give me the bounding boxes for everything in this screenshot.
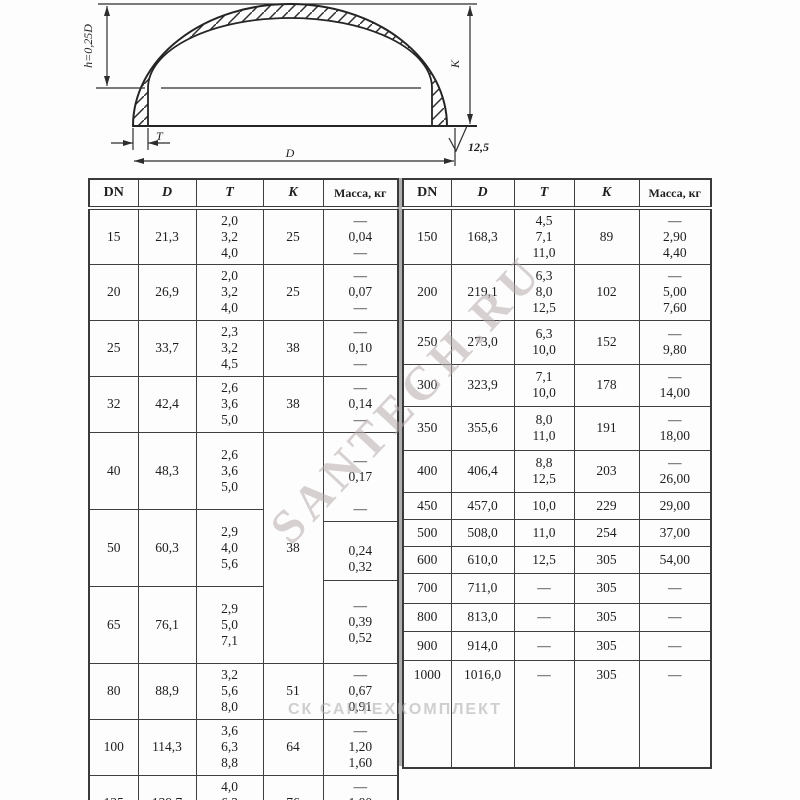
col-header-d: D [138, 179, 196, 208]
cell-d: 355,6 [451, 406, 514, 450]
col-header-dn: DN [89, 179, 138, 208]
cell-mass: — 5,00 7,60 [639, 264, 711, 320]
cell-mass: — 14,00 [639, 364, 711, 406]
cell-t: 4,5 7,1 11,0 [514, 208, 574, 264]
table-row: 32 42,4 2,6 3,6 5,0 38 — 0,14 — [89, 376, 398, 432]
col-header-mass: Масса, кг [323, 179, 398, 208]
cell-mass: — 0,39 0,52 [324, 597, 398, 647]
cell-dn: 700 [403, 573, 451, 603]
cell-mass: — [639, 573, 711, 603]
cell-mass: — 9,80 [639, 320, 711, 364]
cell-k: 25 [263, 264, 323, 320]
cell-k: 64 [263, 719, 323, 775]
cell-k: 178 [574, 364, 639, 406]
cell-d: 406,4 [451, 450, 514, 492]
cell-d: 76,1 [138, 586, 196, 663]
cell-d: 508,0 [451, 519, 514, 546]
cell-mass: — 0,17 — [324, 449, 398, 522]
cell-t: — [514, 660, 574, 768]
cell-t: 7,1 10,0 [514, 364, 574, 406]
cell-mass: — 0,04 — [323, 208, 398, 264]
cell-k: 25 [263, 208, 323, 264]
cell-dn: 100 [89, 719, 138, 775]
cell-t: 6,3 8,0 12,5 [514, 264, 574, 320]
cell-dn: 500 [403, 519, 451, 546]
table-row: 100 114,3 3,6 6,3 8,8 64 — 1,20 1,60 [89, 719, 398, 775]
table-row: 450 457,0 10,0 229 29,00 [403, 492, 711, 519]
cell-mass: — 0,07 — [323, 264, 398, 320]
table-row: 20 26,9 2,0 3,2 4,0 25 — 0,07 — [89, 264, 398, 320]
cell-k-merged: 38 [263, 432, 323, 663]
cell-mass: — 0,14 — [323, 376, 398, 432]
cell-dn: 50 [89, 509, 138, 586]
cell-t: 2,6 3,6 5,0 [196, 432, 263, 509]
cell-t: 8,0 11,0 [514, 406, 574, 450]
cell-d: 1016,0 [451, 660, 514, 768]
cell-k: 305 [574, 660, 639, 768]
cell-d: 914,0 [451, 631, 514, 660]
cell-mass: — [639, 631, 711, 660]
table-row: 400 406,4 8,8 12,5 203 — 26,00 [403, 450, 711, 492]
cell-d: 21,3 [138, 208, 196, 264]
cell-dn: 400 [403, 450, 451, 492]
cell-dn: 65 [89, 586, 138, 663]
cell-k: 76 [263, 775, 323, 800]
cell-t: 2,3 3,2 4,5 [196, 320, 263, 376]
cell-d: 711,0 [451, 573, 514, 603]
cell-k: 305 [574, 631, 639, 660]
cell-dn: 800 [403, 603, 451, 631]
cell-mass: — 0,67 0,91 [323, 663, 398, 719]
col-header-t: T [514, 179, 574, 208]
cell-t: 3,2 5,6 8,0 [196, 663, 263, 719]
cell-mass: — 18,00 [639, 406, 711, 450]
dimensions-table-dn15-125: DN D T K Масса, кг 15 21,3 2,0 3,2 4,0 2… [88, 178, 399, 800]
table-row: 40 48,3 2,6 3,6 5,0 38 — 0,17 — 0,24 0,3… [89, 432, 398, 509]
cell-dn: 600 [403, 546, 451, 573]
col-header-k: K [574, 179, 639, 208]
table-row: 600 610,0 12,5 305 54,00 [403, 546, 711, 573]
cell-t: 12,5 [514, 546, 574, 573]
cell-mass: — [639, 603, 711, 631]
col-header-t: T [196, 179, 263, 208]
cell-d: 33,7 [138, 320, 196, 376]
cell-t: 2,0 3,2 4,0 [196, 264, 263, 320]
h-dimension-label: h=0,25D [81, 24, 95, 68]
d-dimension-label: D [285, 146, 295, 160]
cell-dn: 300 [403, 364, 451, 406]
cell-mass: — 1,80 2,80 [323, 775, 398, 800]
table-row: 800 813,0 — 305 — [403, 603, 711, 631]
col-header-dn: DN [403, 179, 451, 208]
t-dimension-label: T [156, 129, 164, 143]
cell-k: 305 [574, 546, 639, 573]
cell-t: 2,6 3,6 5,0 [196, 376, 263, 432]
cell-d: 26,9 [138, 264, 196, 320]
table-row: 200 219,1 6,3 8,0 12,5 102 — 5,00 7,60 [403, 264, 711, 320]
cell-mass: 54,00 [639, 546, 711, 573]
cell-k: 51 [263, 663, 323, 719]
cell-mass: 37,00 [639, 519, 711, 546]
cell-t: 6,3 10,0 [514, 320, 574, 364]
cell-k: 152 [574, 320, 639, 364]
header-row: DN D T K Масса, кг [403, 179, 711, 208]
table-row: 250 273,0 6,3 10,0 152 — 9,80 [403, 320, 711, 364]
cell-k: 38 [263, 320, 323, 376]
cell-k: 203 [574, 450, 639, 492]
cell-d: 88,9 [138, 663, 196, 719]
table-row: 900 914,0 — 305 — [403, 631, 711, 660]
cell-dn: 350 [403, 406, 451, 450]
cell-mass: 29,00 [639, 492, 711, 519]
table-row: 15 21,3 2,0 3,2 4,0 25 — 0,04 — [89, 208, 398, 264]
cell-d: 139,7 [138, 775, 196, 800]
table-row: 1000 1016,0 — 305 — [403, 660, 711, 768]
header-row: DN D T K Масса, кг [89, 179, 398, 208]
cell-t: 11,0 [514, 519, 574, 546]
cell-d: 813,0 [451, 603, 514, 631]
cell-k: 102 [574, 264, 639, 320]
cell-mass-split: — 0,17 — 0,24 0,32 — 0,39 0,52 [323, 432, 398, 663]
col-header-d: D [451, 179, 514, 208]
cell-k: 229 [574, 492, 639, 519]
table-row: 150 168,3 4,5 7,1 11,0 89 — 2,90 4,40 [403, 208, 711, 264]
cell-k: 38 [263, 376, 323, 432]
cell-d: 42,4 [138, 376, 196, 432]
cell-mass: — 2,90 4,40 [639, 208, 711, 264]
cell-dn: 20 [89, 264, 138, 320]
dimensions-table-dn150-1000: DN D T K Масса, кг 150 168,3 4,5 7,1 11,… [402, 178, 712, 769]
table-row: 500 508,0 11,0 254 37,00 [403, 519, 711, 546]
cell-k: 305 [574, 573, 639, 603]
cell-mass: — 0,10 — [323, 320, 398, 376]
cell-d: 457,0 [451, 492, 514, 519]
cell-d: 610,0 [451, 546, 514, 573]
cell-mass: — 1,20 1,60 [323, 719, 398, 775]
cell-dn: 900 [403, 631, 451, 660]
cell-k: 89 [574, 208, 639, 264]
cell-k: 191 [574, 406, 639, 450]
table-row: 700 711,0 — 305 — [403, 573, 711, 603]
cell-d: 273,0 [451, 320, 514, 364]
cell-t: — [514, 573, 574, 603]
cell-t: 10,0 [514, 492, 574, 519]
cell-mass: — [639, 660, 711, 768]
cell-mass: — 26,00 [639, 450, 711, 492]
cell-t: 2,9 5,0 7,1 [196, 586, 263, 663]
cell-k: 305 [574, 603, 639, 631]
cell-t: — [514, 603, 574, 631]
cell-dn: 150 [403, 208, 451, 264]
catalog-page: h=0,25D K T D 12,5 DN D T K Масса, кг [0, 0, 800, 800]
cell-d: 48,3 [138, 432, 196, 509]
cell-t: 2,9 4,0 5,6 [196, 509, 263, 586]
table-row: 25 33,7 2,3 3,2 4,5 38 — 0,10 — [89, 320, 398, 376]
cell-d: 219,1 [451, 264, 514, 320]
cell-d: 168,3 [451, 208, 514, 264]
cell-k: 254 [574, 519, 639, 546]
col-header-k: K [263, 179, 323, 208]
cell-dn: 250 [403, 320, 451, 364]
cell-d: 323,9 [451, 364, 514, 406]
cell-t: 8,8 12,5 [514, 450, 574, 492]
table-row: 125 139,7 4,0 6,3 10,0 76 — 1,80 2,80 [89, 775, 398, 800]
cap-technical-drawing: h=0,25D K T D 12,5 [0, 0, 520, 175]
cell-dn: 25 [89, 320, 138, 376]
cell-d: 60,3 [138, 509, 196, 586]
cell-dn: 200 [403, 264, 451, 320]
cell-mass: 0,24 0,32 [324, 538, 398, 581]
cell-dn: 125 [89, 775, 138, 800]
cell-dn: 40 [89, 432, 138, 509]
table-row: 350 355,6 8,0 11,0 191 — 18,00 [403, 406, 711, 450]
roughness-symbol [449, 126, 467, 151]
k-dimension-label: K [448, 59, 462, 69]
cell-dn: 450 [403, 492, 451, 519]
table-row: 80 88,9 3,2 5,6 8,0 51 — 0,67 0,91 [89, 663, 398, 719]
cell-dn: 1000 [403, 660, 451, 768]
cell-t: 4,0 6,3 10,0 [196, 775, 263, 800]
cell-dn: 80 [89, 663, 138, 719]
cell-d: 114,3 [138, 719, 196, 775]
cell-dn: 15 [89, 208, 138, 264]
col-header-mass: Масса, кг [639, 179, 711, 208]
cell-dn: 32 [89, 376, 138, 432]
cell-t: 2,0 3,2 4,0 [196, 208, 263, 264]
cell-t: — [514, 631, 574, 660]
roughness-value: 12,5 [468, 140, 489, 154]
cell-t: 3,6 6,3 8,8 [196, 719, 263, 775]
table-row: 300 323,9 7,1 10,0 178 — 14,00 [403, 364, 711, 406]
